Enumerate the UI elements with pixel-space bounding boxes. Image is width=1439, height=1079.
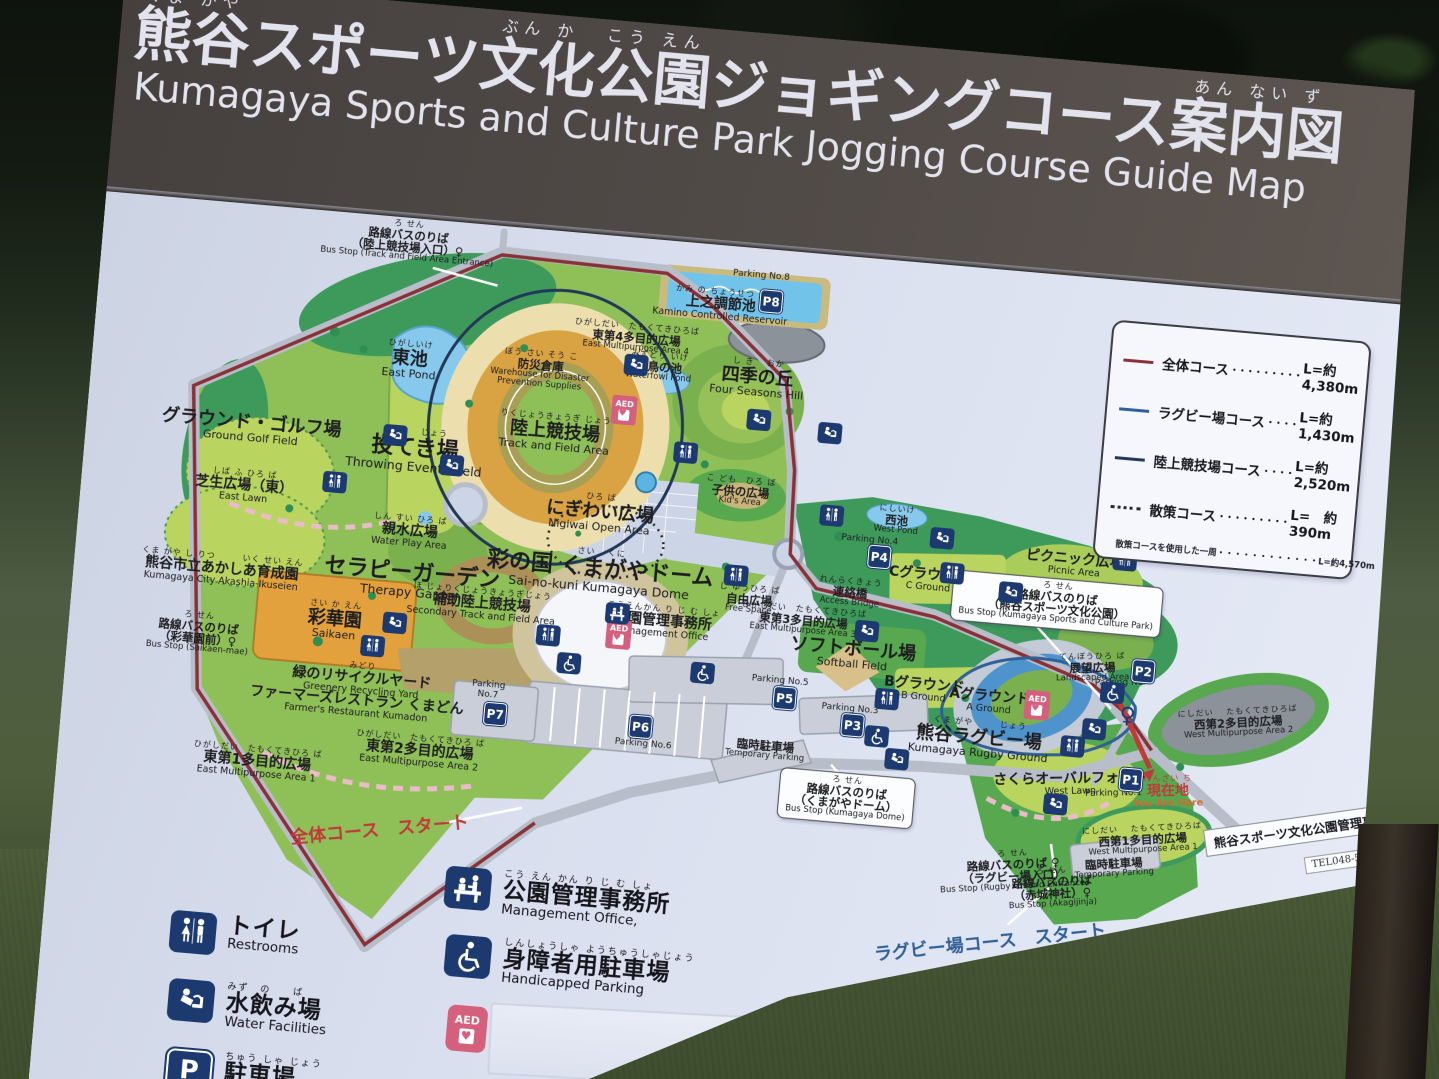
facility-legend-text: トイレRestrooms — [226, 915, 301, 958]
reception-icon — [443, 865, 492, 911]
title-part: ぶん か文化 — [477, 14, 599, 102]
wheelchair-icon — [443, 934, 492, 980]
facility-legend-restroom: トイレRestrooms — [168, 910, 301, 963]
facility-legend-fountain: みず の ば水飲み場Water Facilities — [166, 978, 329, 1038]
facility-legend-parking: Pちゅう しゃ じょう駐車場Parking Lot — [164, 1048, 323, 1079]
sign-post — [1345, 824, 1438, 1079]
title-part: こう えん公園 — [593, 25, 715, 113]
facility-legend-text: しんしょうしゃ ようちゅうしゃじょう身障者用駐車場Handicapped Par… — [501, 939, 696, 1002]
facility-legend-text: みず の ば水飲み場Water Facilities — [224, 983, 330, 1038]
photo-scene: くま がや熊谷 スポーツぶん か文化こう えん公園 ジョギングコースあん ない … — [0, 0, 1439, 1079]
aed-big-icon: AED♥ — [445, 1004, 489, 1053]
parking-icon: P — [164, 1048, 213, 1079]
facility-legend-reception: こう えん かん り じ む しょ公園管理事務所Management Offic… — [443, 865, 672, 931]
title-part: くま がや熊谷 — [132, 0, 254, 72]
title-part: あん ない ず案内図 — [1168, 75, 1348, 168]
restroom-icon — [168, 910, 217, 956]
facility-legend-text: ちゅう しゃ じょう駐車場Parking Lot — [222, 1053, 323, 1079]
fountain-icon — [166, 978, 215, 1024]
facility-legend-text: こう えん かん り じ む しょ公園管理事務所Management Offic… — [501, 870, 672, 931]
facility-legend-aed-big: AED♥ — [445, 1004, 489, 1053]
facility-legend-wheelchair: しんしょうしゃ ようちゅうしゃじょう身障者用駐車場Handicapped Par… — [443, 934, 696, 1002]
